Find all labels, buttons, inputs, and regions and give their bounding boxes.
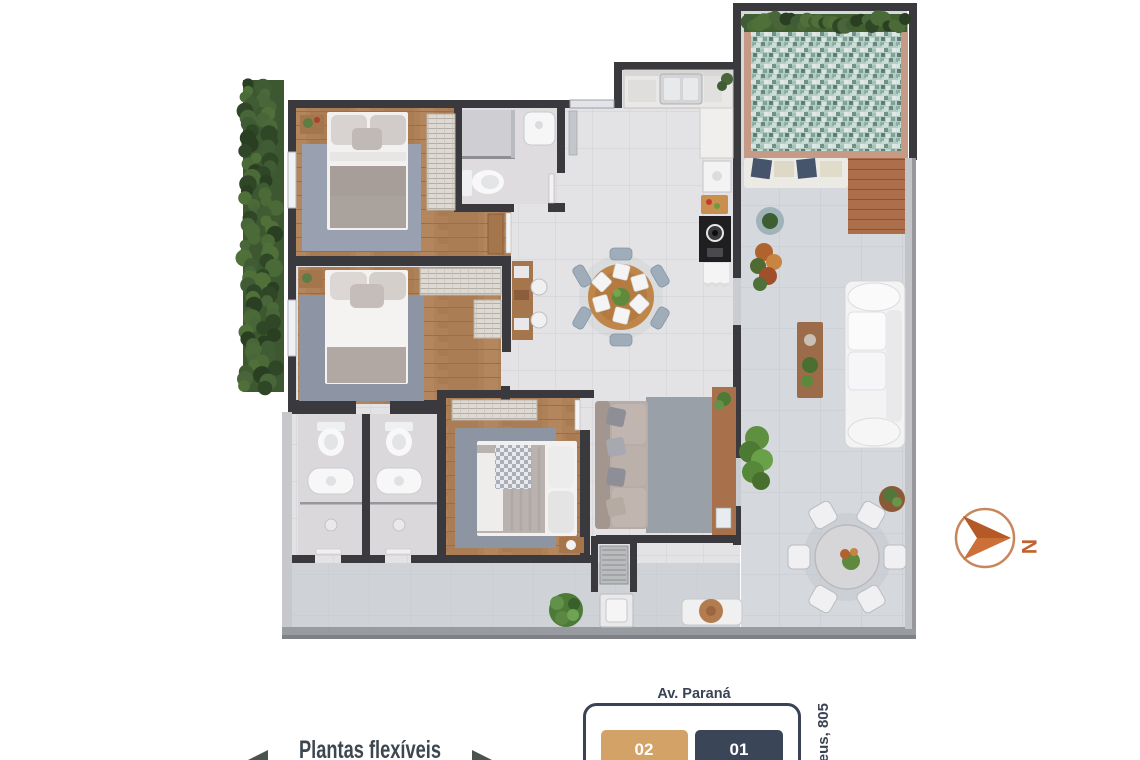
svg-text:Mateus, 805: Mateus, 805 [815, 703, 832, 760]
svg-text:01: 01 [730, 740, 749, 759]
svg-text:02: 02 [635, 740, 654, 759]
svg-text:N: N [1017, 539, 1040, 554]
svg-text:Plantas flexíveis: Plantas flexíveis [299, 736, 441, 760]
svg-text:Av. Paraná: Av. Paraná [657, 686, 731, 702]
